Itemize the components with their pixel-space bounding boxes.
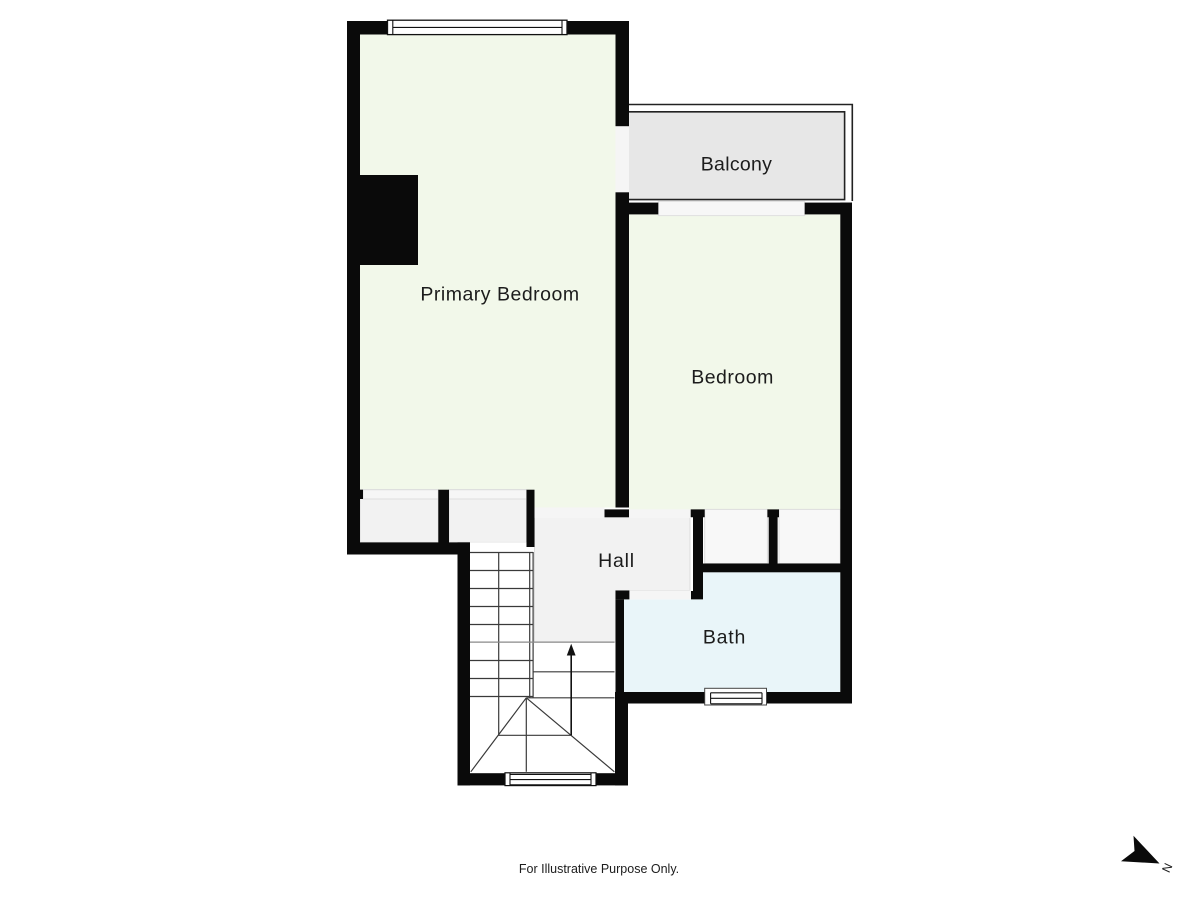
svg-text:Primary Bedroom: Primary Bedroom xyxy=(420,284,579,306)
svg-text:Hall: Hall xyxy=(598,550,635,572)
svg-text:Bedroom: Bedroom xyxy=(691,367,774,389)
svg-text:Balcony: Balcony xyxy=(701,153,772,175)
svg-text:For Illustrative Purpose Only.: For Illustrative Purpose Only. xyxy=(519,862,679,876)
svg-text:Bath: Bath xyxy=(703,627,746,649)
